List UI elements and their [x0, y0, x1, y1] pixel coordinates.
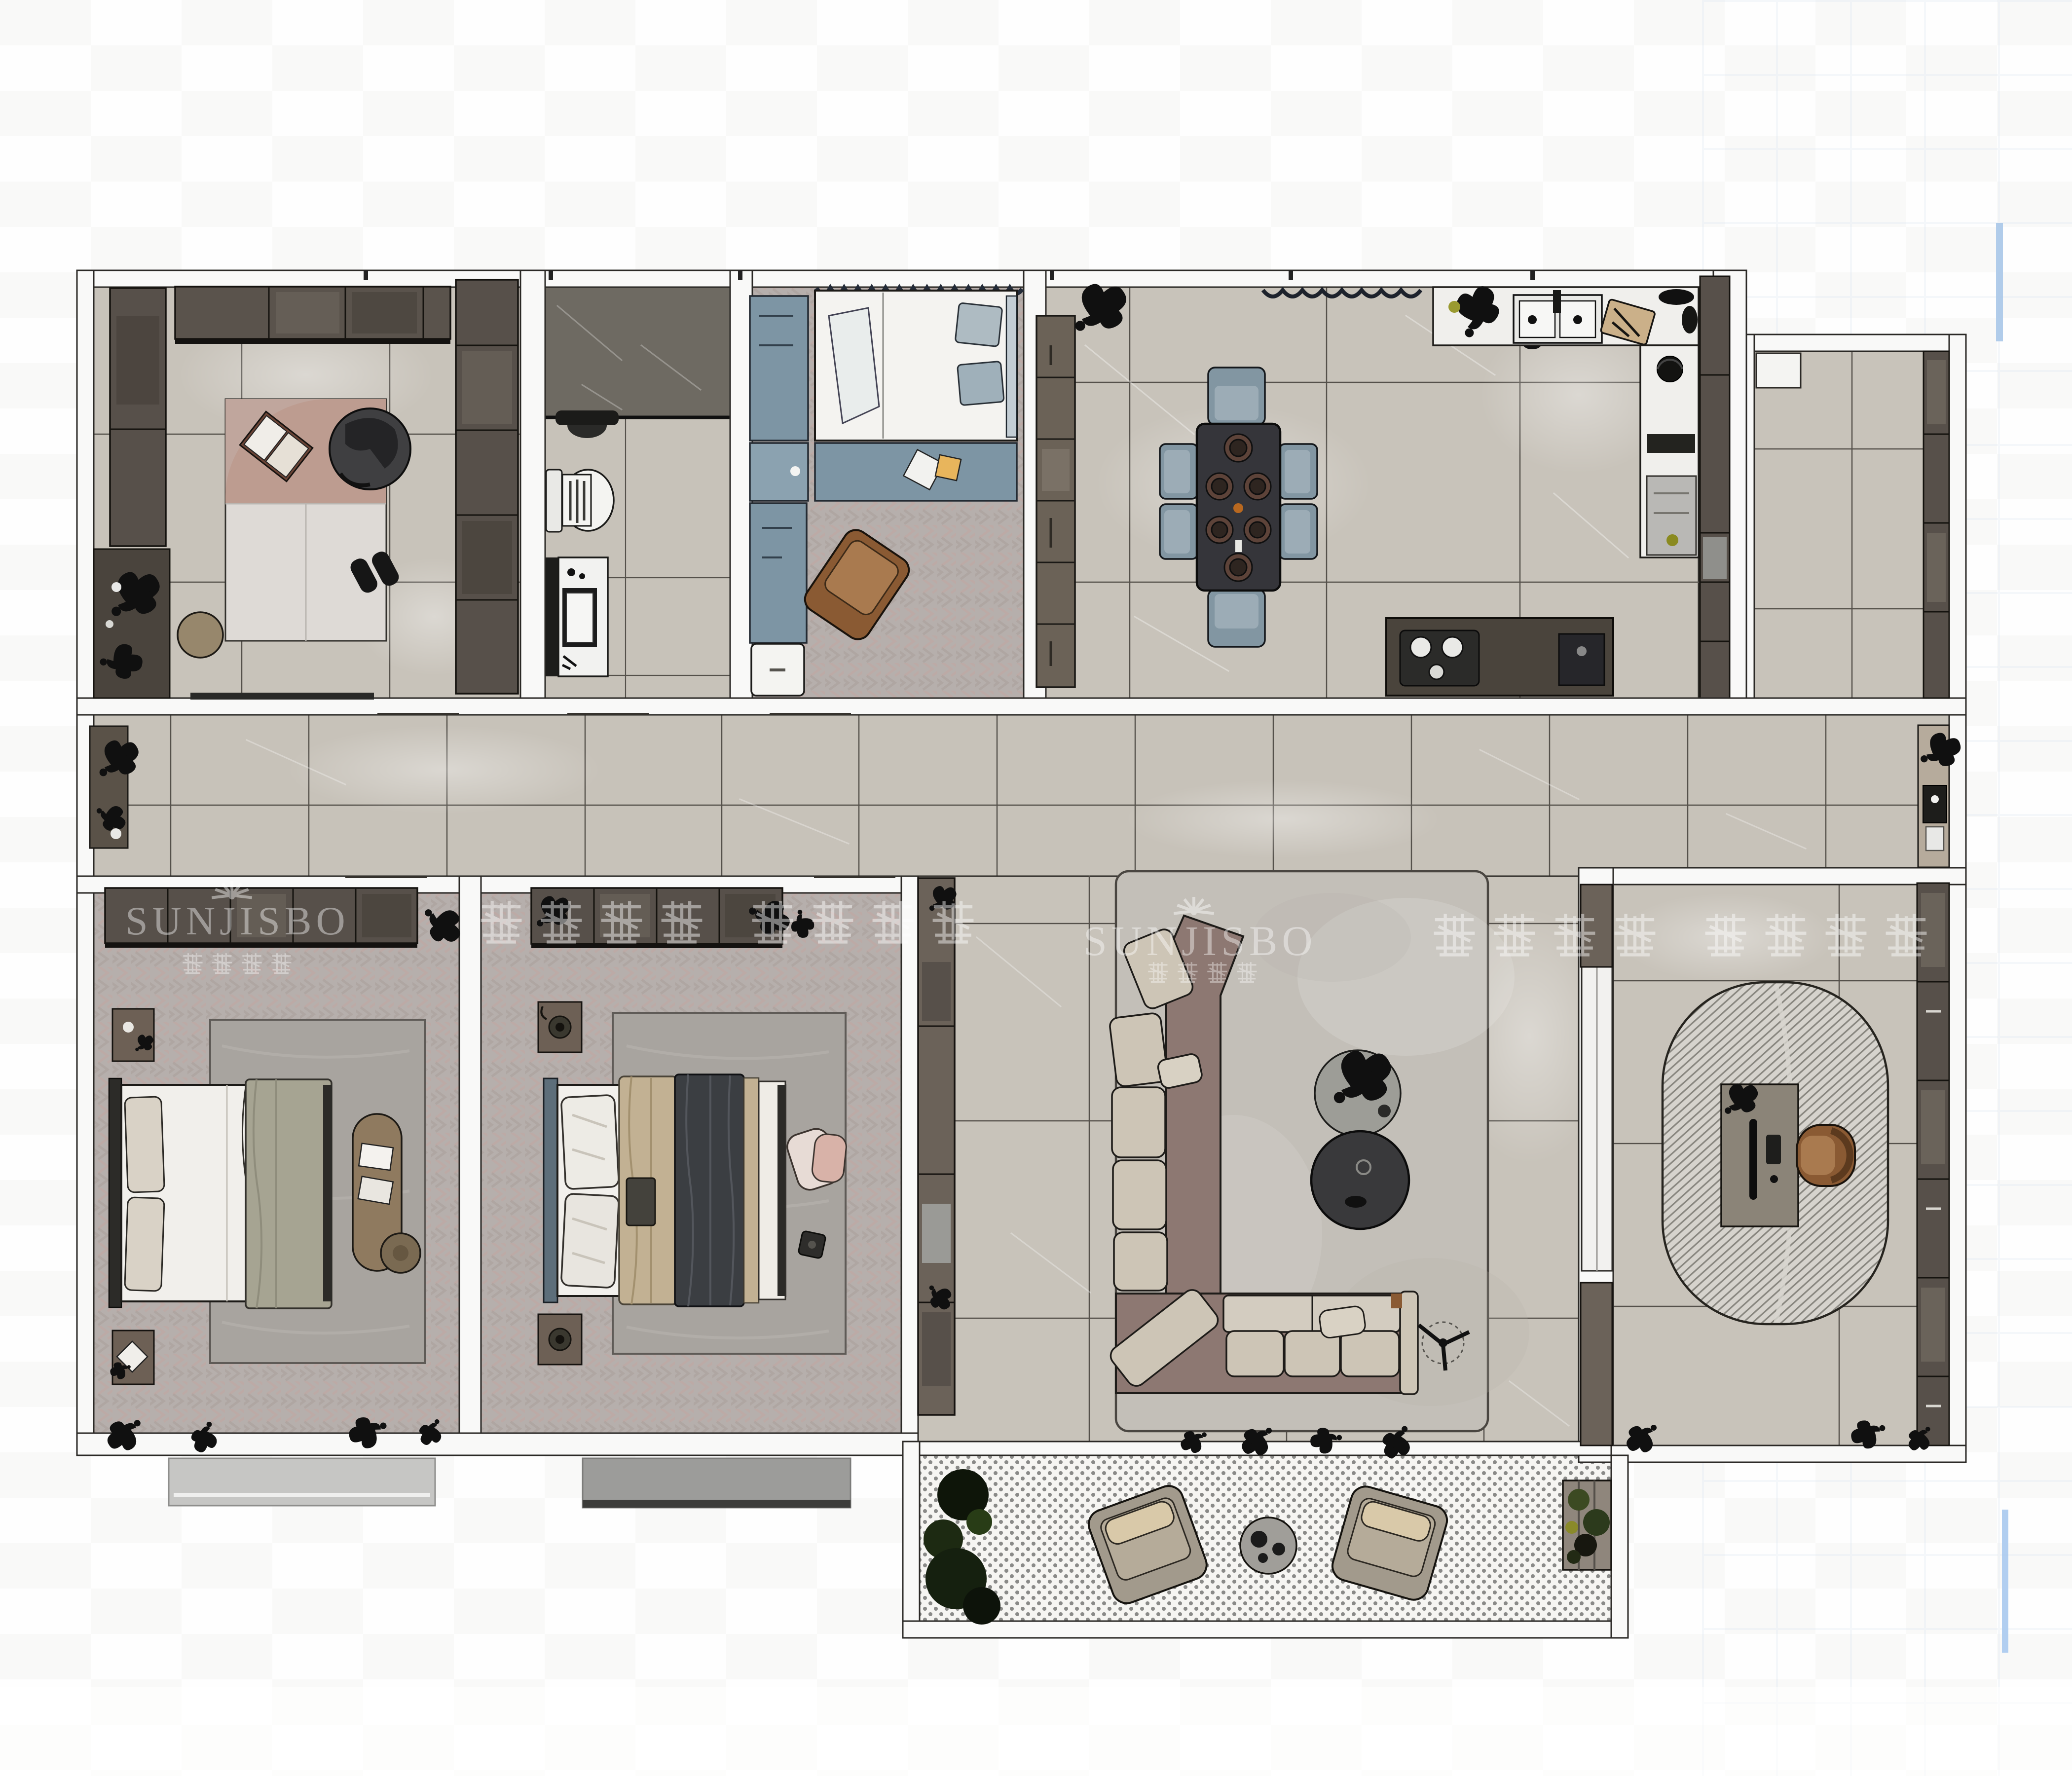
- svg-text:SUNJISBO: SUNJISBO: [1083, 917, 1317, 964]
- svg-text:SUNJISBO: SUNJISBO: [125, 898, 350, 943]
